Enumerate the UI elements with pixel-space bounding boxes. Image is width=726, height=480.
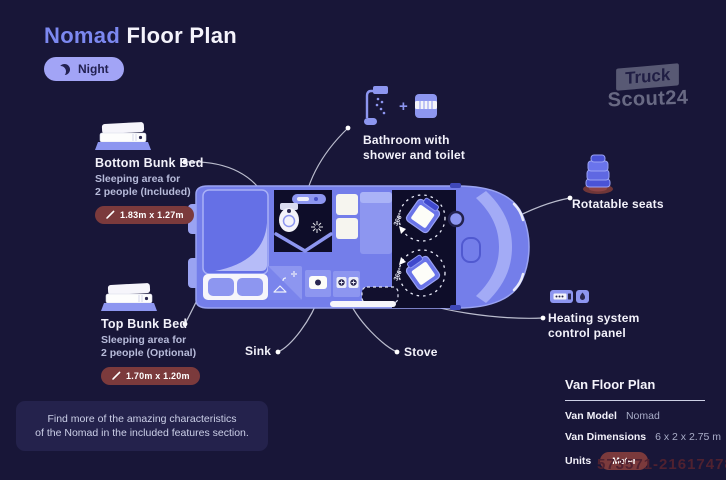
- steering-wheel: [449, 212, 463, 226]
- pencil-icon: [105, 210, 115, 220]
- top-bunk-annotation: Top Bunk Bed Sleeping area for 2 people …: [101, 281, 231, 386]
- top-bunk-dimensions-badge: 1.70m x 1.20m: [101, 367, 200, 385]
- heating-label: Heating system control panel: [548, 311, 640, 341]
- bathroom-label: Bathroom with shower and toilet: [363, 133, 465, 163]
- bottom-bunk-desc: Sleeping area for 2 people (Included): [95, 173, 225, 199]
- seat-icon: [578, 153, 618, 195]
- stove-label: Stove: [404, 345, 438, 360]
- top-bunk-desc: Sleeping area for 2 people (Optional): [101, 334, 231, 360]
- shower-icon: [363, 84, 393, 128]
- watermark-number: 573571-21617478: [597, 456, 726, 473]
- pencil-icon: [111, 371, 121, 381]
- info-panel-title: Van Floor Plan: [565, 377, 705, 401]
- bottom-bunk-dimensions-badge: 1.83m x 1.27m: [95, 206, 194, 224]
- nomad-floor-plan-page: Nomad Floor Plan Night Truck Scout24: [0, 0, 726, 480]
- wardrobe: [268, 266, 302, 300]
- rotatable-seats-label: Rotatable seats: [572, 197, 664, 212]
- features-note: Find more of the amazing characteristics…: [16, 401, 268, 451]
- bottom-bunk-annotation: Bottom Bunk Bed Sleeping area for 2 peop…: [95, 120, 225, 225]
- heating-annotation: Heating system control panel: [548, 288, 640, 341]
- info-row-dimensions: Van Dimensions 6 x 2 x 2.75 m: [565, 431, 717, 443]
- sink-unit: [305, 270, 331, 297]
- bathroom-area: [274, 190, 332, 252]
- rotatable-seats-annotation: Rotatable seats: [572, 153, 664, 212]
- bathroom-annotation: + Bathroom with shower and toilet: [363, 83, 465, 163]
- top-bunk-title: Top Bunk Bed: [101, 317, 231, 331]
- sink-label: Sink: [245, 344, 271, 359]
- bunk-bed-icon: [101, 281, 159, 312]
- entry-step: [362, 287, 398, 303]
- bottom-bunk-title: Bottom Bunk Bed: [95, 156, 225, 170]
- plus-icon: +: [399, 98, 408, 115]
- stove-unit: [333, 271, 360, 297]
- toilet-icon: [414, 93, 438, 119]
- bunk-bed-icon: [95, 120, 153, 151]
- heating-panel-icon: [550, 288, 590, 305]
- bathroom-icons: +: [363, 83, 465, 129]
- info-row-model: Van Model Nomad: [565, 410, 717, 422]
- running-board: [330, 301, 396, 307]
- rotatable-seats-area: 360° 360°: [392, 190, 456, 308]
